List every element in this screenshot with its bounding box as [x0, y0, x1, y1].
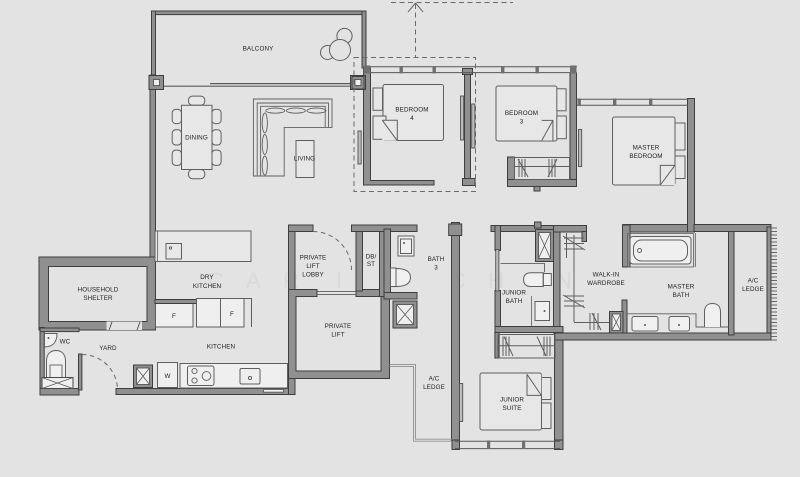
svg-text:BEDROOM: BEDROOM: [505, 110, 538, 117]
svg-text:MASTER: MASTER: [668, 284, 695, 291]
svg-text:SHELTER: SHELTER: [83, 295, 113, 302]
svg-text:ST: ST: [367, 261, 375, 268]
svg-text:A/C: A/C: [429, 376, 440, 383]
svg-text:YARD: YARD: [99, 345, 117, 352]
svg-text:KITCHEN: KITCHEN: [207, 344, 236, 351]
svg-text:4: 4: [410, 115, 414, 122]
svg-text:DB/: DB/: [366, 254, 377, 261]
svg-text:WARDROBE: WARDROBE: [587, 280, 625, 287]
svg-text:MASTER: MASTER: [633, 145, 660, 152]
svg-text:LIVING: LIVING: [294, 156, 315, 163]
svg-text:I: I: [336, 268, 342, 293]
svg-text:KITCHEN: KITCHEN: [193, 283, 222, 290]
svg-text:BATH: BATH: [428, 256, 445, 263]
svg-text:F: F: [230, 311, 234, 318]
svg-text:PRIVATE: PRIVATE: [325, 323, 352, 330]
svg-text:LEDGE: LEDGE: [423, 384, 445, 391]
svg-text:SUITE: SUITE: [502, 405, 521, 412]
svg-text:F: F: [172, 313, 176, 320]
svg-text:DINING: DINING: [185, 135, 208, 142]
svg-text:A/C: A/C: [748, 278, 759, 285]
svg-text:LIFT: LIFT: [331, 332, 344, 339]
svg-text:WALK-IN: WALK-IN: [593, 272, 620, 279]
svg-text:3: 3: [520, 119, 524, 126]
svg-text:PRIVATE: PRIVATE: [300, 255, 327, 262]
svg-text:BEDROOM: BEDROOM: [629, 153, 662, 160]
svg-text:BATH: BATH: [506, 298, 523, 305]
svg-text:JUNIOR: JUNIOR: [502, 290, 526, 297]
svg-text:JUNIOR: JUNIOR: [500, 397, 524, 404]
svg-text:LIFT: LIFT: [306, 263, 319, 270]
svg-text:A: A: [246, 268, 261, 293]
svg-text:LEDGE: LEDGE: [742, 286, 764, 293]
svg-text:BATH: BATH: [673, 292, 690, 299]
svg-text:BALCONY: BALCONY: [243, 46, 274, 53]
svg-text:DRY: DRY: [200, 274, 214, 281]
svg-text:W: W: [164, 373, 170, 380]
svg-text:LOBBY: LOBBY: [302, 272, 324, 279]
svg-text:3: 3: [434, 265, 438, 272]
svg-text:HOUSEHOLD: HOUSEHOLD: [78, 287, 119, 294]
svg-text:BEDROOM: BEDROOM: [395, 107, 428, 114]
svg-text:WC: WC: [60, 339, 71, 346]
